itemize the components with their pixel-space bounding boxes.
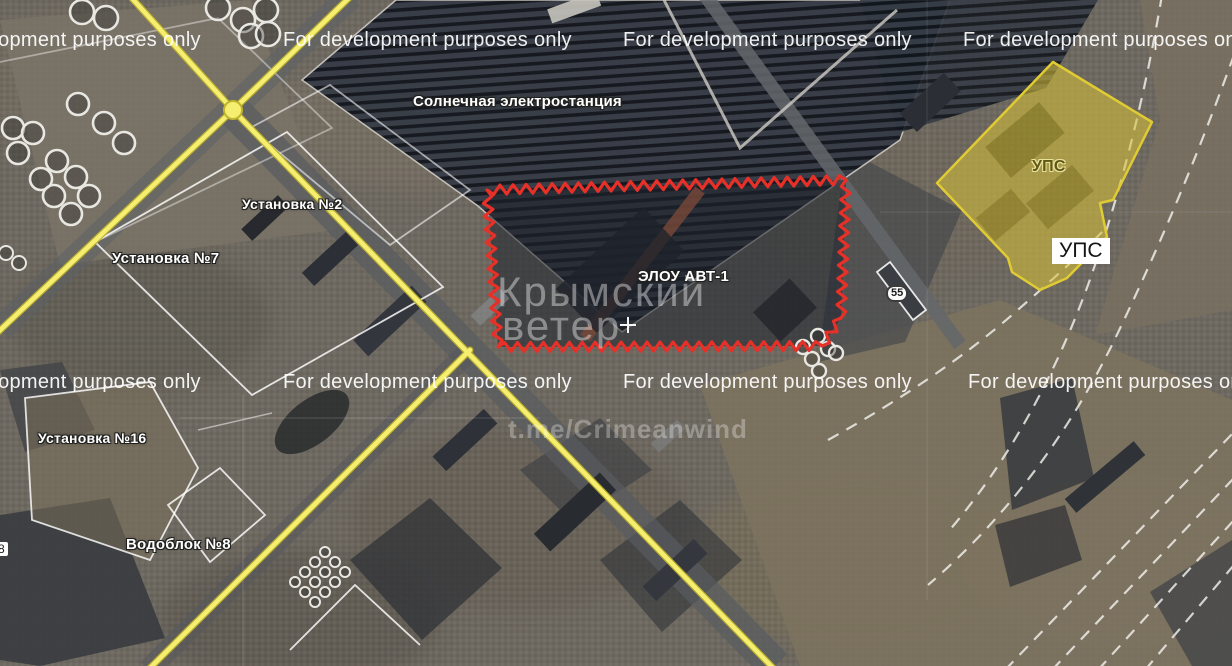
label-ups-area: УПС [1032, 158, 1066, 176]
ups-badge: УПС [1052, 238, 1110, 264]
watermark-dev-5: For development purposes only [0, 371, 201, 394]
oil-tank [310, 577, 320, 587]
oil-tank [320, 547, 330, 557]
oil-tank [290, 577, 300, 587]
label-unit-16: Установка №16 [38, 430, 146, 446]
oil-tank [70, 0, 94, 24]
watermark-dev-2: For development purposes only [283, 29, 572, 52]
oil-tank [320, 587, 330, 597]
oil-tank [46, 150, 68, 172]
oil-tank [300, 587, 310, 597]
label-unit-2: Установка №2 [242, 196, 342, 212]
oil-tank [254, 0, 278, 22]
oil-tank [330, 577, 340, 587]
label-unit-7: Установка №7 [112, 250, 219, 267]
oil-tank [43, 185, 65, 207]
oil-tank [12, 256, 26, 270]
watermark-dev-1: For development purposes only [0, 29, 201, 52]
oil-tank [113, 132, 135, 154]
label-solar-station: Солнечная электростанция [413, 93, 622, 110]
label-water-block-8: Водоблок №8 [126, 536, 231, 553]
oil-tank [320, 567, 330, 577]
oil-tank [330, 557, 340, 567]
road-shield-55: 55 [886, 285, 908, 302]
oil-tank [22, 122, 44, 144]
oil-tank [60, 203, 82, 225]
oil-tank [300, 567, 310, 577]
oil-tank [0, 246, 13, 260]
watermark-channel: t.me/Crimeanwind [508, 414, 748, 445]
watermark-brand-line2: ветер [502, 302, 621, 350]
oil-tank [310, 597, 320, 607]
oil-tank [256, 22, 280, 46]
watermark-dev-6: For development purposes only [283, 371, 572, 394]
oil-tank [93, 112, 115, 134]
satellite-map[interactable]: Солнечная электростанция Установка №2 Ус… [0, 0, 1232, 666]
watermark-dev-8: For development purposes only [968, 371, 1232, 394]
oil-tank [67, 93, 89, 115]
oil-tank [78, 185, 100, 207]
oil-tank [811, 329, 825, 343]
watermark-dev-3: For development purposes only [623, 29, 912, 52]
oil-tank [829, 346, 843, 360]
oil-tank [206, 0, 230, 20]
oil-tank [2, 117, 24, 139]
oil-tank [310, 557, 320, 567]
oil-tank [7, 142, 29, 164]
edge-partial-label: 8 [0, 542, 8, 556]
oil-tank [65, 166, 87, 188]
road-intersection [224, 101, 242, 119]
oil-tank [94, 6, 118, 30]
watermark-dev-4: For development purposes only [963, 29, 1232, 52]
oil-tank [340, 567, 350, 577]
watermark-dev-7: For development purposes only [623, 371, 912, 394]
